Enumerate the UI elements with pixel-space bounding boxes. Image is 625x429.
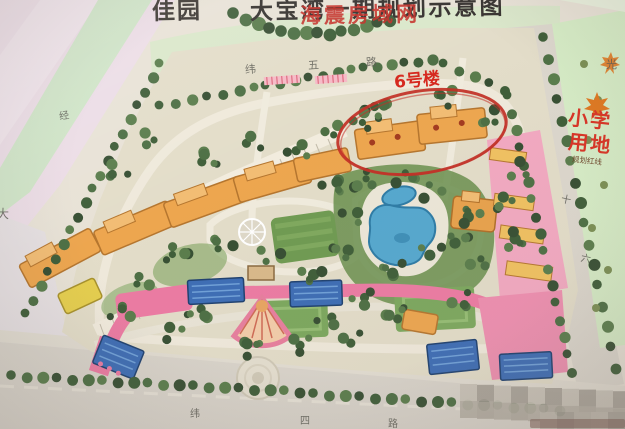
tree-icon	[475, 209, 484, 218]
tree-icon	[575, 197, 587, 209]
tree-icon	[126, 114, 137, 125]
tree-icon	[199, 310, 210, 321]
mosaic-cell	[460, 384, 477, 401]
tree-icon	[437, 243, 446, 252]
tree-icon	[386, 393, 398, 405]
shop-building	[499, 352, 552, 381]
tree-icon	[51, 254, 61, 264]
tree-icon	[508, 226, 519, 237]
shop-building	[187, 278, 244, 305]
tree-icon	[132, 100, 141, 109]
tree-icon	[399, 58, 408, 67]
tree-icon	[28, 296, 38, 306]
tree-icon	[557, 116, 568, 127]
tree-icon	[97, 375, 107, 385]
tree-icon	[37, 372, 49, 384]
site-plan-svg: 佳园 大宝湾一期规划示意图 海震房域网 6号楼 小学 用地 规划红线 纬 五 路…	[0, 0, 625, 429]
tree-icon	[364, 125, 371, 132]
road-label-corner-right: 光	[606, 57, 617, 71]
tree-icon	[523, 177, 534, 188]
mosaic-cell	[579, 390, 596, 407]
tree-icon	[366, 287, 375, 296]
tree-icon	[464, 208, 471, 215]
tree-icon	[234, 383, 244, 393]
tree-icon	[65, 225, 74, 234]
tree-icon	[484, 78, 493, 87]
tree-icon	[171, 99, 181, 109]
tree-icon	[288, 334, 299, 345]
tree-icon	[164, 322, 175, 333]
tree-icon	[162, 335, 171, 344]
tree-icon	[356, 330, 363, 337]
mosaic-cell	[477, 385, 494, 402]
tree-icon	[158, 380, 169, 391]
tree-icon	[295, 388, 306, 399]
tree-icon	[432, 396, 444, 408]
tree-icon	[511, 125, 522, 136]
mosaic-cell	[477, 402, 494, 419]
tree-icon	[611, 364, 622, 375]
tree-icon	[59, 239, 70, 250]
tree-icon	[133, 280, 140, 287]
tree-icon	[144, 279, 155, 290]
tree-icon	[592, 304, 600, 312]
tree-icon	[303, 152, 310, 159]
tree-icon	[580, 60, 588, 68]
label-school-2: 用地	[567, 129, 613, 157]
mosaic-cell	[528, 387, 545, 404]
mosaic-cell	[494, 386, 511, 403]
tree-icon	[600, 181, 608, 189]
tree-icon	[108, 170, 117, 179]
tree-icon	[174, 379, 186, 391]
tree-icon	[67, 375, 78, 386]
tree-icon	[212, 237, 221, 246]
road-label-bottom-3: 路	[388, 417, 398, 429]
photo-frame: 佳园 大宝湾一期规划示意图 海震房域网 6号楼 小学 用地 规划红线 纬 五 路…	[0, 0, 625, 429]
tree-icon	[555, 316, 565, 326]
mosaic-cell	[494, 403, 511, 420]
tree-icon	[249, 385, 260, 396]
tree-icon	[22, 372, 33, 383]
tree-icon	[604, 266, 612, 274]
tree-icon	[355, 219, 362, 226]
tree-icon	[187, 310, 194, 317]
tree-icon	[81, 197, 92, 208]
tree-icon	[320, 127, 329, 136]
road-label-bottom-1: 纬	[190, 407, 200, 420]
tree-icon	[215, 245, 222, 252]
tree-icon	[543, 54, 554, 65]
tree-icon	[330, 131, 337, 138]
tree-icon	[316, 266, 327, 277]
tree-icon	[227, 240, 238, 251]
tree-icon	[531, 213, 541, 223]
tree-icon	[313, 317, 320, 324]
blurred-watermark-strip	[530, 419, 625, 428]
tree-icon	[36, 281, 47, 292]
tree-icon	[370, 394, 381, 405]
tree-icon	[304, 73, 313, 82]
mosaic-cell	[460, 401, 477, 418]
tree-icon	[387, 59, 398, 70]
tree-icon	[88, 184, 97, 193]
tree-icon	[349, 295, 356, 302]
tree-icon	[242, 338, 253, 349]
tree-icon	[516, 239, 523, 246]
tree-icon	[179, 248, 190, 259]
tree-icon	[257, 246, 266, 255]
tree-icon	[163, 256, 170, 263]
tree-icon	[199, 149, 210, 160]
tree-icon	[543, 265, 553, 275]
tree-icon	[83, 374, 95, 386]
tree-icon	[352, 180, 363, 191]
tree-icon	[481, 117, 490, 126]
mosaic-cell	[562, 389, 579, 406]
tree-icon	[570, 178, 581, 189]
tree-icon	[148, 72, 159, 83]
mosaic-cell	[596, 390, 613, 407]
tree-icon	[507, 172, 516, 181]
tree-icon	[107, 313, 114, 320]
tree-icon	[275, 25, 287, 37]
tree-icon	[391, 177, 402, 188]
tree-icon	[338, 333, 349, 344]
tree-icon	[464, 289, 471, 296]
tree-icon	[253, 341, 260, 348]
tree-icon	[535, 228, 546, 239]
tree-icon	[465, 259, 476, 270]
spoke-plaza	[239, 219, 265, 245]
tree-icon	[491, 119, 498, 126]
tree-icon	[218, 90, 228, 100]
tree-icon	[243, 352, 252, 361]
tree-icon	[398, 259, 407, 268]
tree-icon	[503, 91, 512, 100]
tree-icon	[446, 297, 457, 308]
tree-icon	[418, 244, 425, 251]
tree-icon	[343, 245, 354, 256]
tree-icon	[459, 218, 470, 229]
tree-icon	[559, 332, 570, 343]
tree-icon	[155, 101, 164, 110]
tree-icon	[295, 348, 304, 357]
tree-icon	[204, 383, 215, 394]
tree-icon	[324, 391, 335, 402]
road-label-top-1: 纬	[245, 63, 257, 77]
tree-icon	[426, 181, 433, 188]
label-building-6: 6号楼	[393, 68, 440, 93]
tree-icon	[150, 136, 157, 143]
tree-icon	[460, 300, 469, 309]
shop-building	[427, 339, 480, 374]
mosaic-cell	[613, 391, 625, 408]
tree-icon	[367, 180, 376, 189]
tree-icon	[584, 240, 595, 251]
tree-icon	[523, 171, 530, 178]
tree-icon	[592, 280, 602, 290]
tree-icon	[447, 233, 454, 240]
watermark-overlay-text: 海震房域网	[300, 2, 420, 28]
road-label-bottom-2: 四	[300, 416, 310, 427]
tree-icon	[263, 258, 270, 265]
tree-icon	[538, 32, 548, 42]
tree-icon	[384, 310, 395, 321]
tree-icon	[375, 112, 382, 119]
tree-icon	[142, 140, 151, 149]
tree-icon	[202, 92, 211, 101]
tree-icon	[118, 129, 128, 139]
plan-title-prefix: 佳园	[152, 0, 203, 25]
tree-icon	[168, 242, 177, 251]
tree-icon	[324, 29, 337, 42]
tree-icon	[401, 394, 411, 404]
tree-icon	[275, 248, 286, 259]
tree-icon	[547, 280, 558, 291]
tree-icon	[125, 311, 136, 322]
tree-icon	[328, 319, 339, 330]
tree-icon	[306, 276, 313, 283]
mosaic-cell	[511, 403, 528, 420]
tree-icon	[106, 159, 117, 170]
tree-icon	[283, 148, 292, 157]
tree-icon	[507, 109, 517, 119]
tree-icon	[178, 326, 185, 333]
tree-icon	[73, 213, 83, 223]
tree-icon	[495, 202, 504, 211]
mosaic-cell	[545, 388, 562, 405]
tree-icon	[413, 58, 423, 68]
tree-icon	[113, 378, 124, 389]
tree-icon	[567, 368, 577, 378]
tree-icon	[250, 83, 259, 92]
tree-icon	[95, 171, 105, 181]
tree-icon	[461, 233, 470, 242]
tree-icon	[6, 370, 16, 380]
tree-icon	[477, 255, 484, 262]
tree-icon	[399, 306, 406, 313]
tree-icon	[498, 192, 509, 203]
tree-icon	[110, 142, 119, 151]
tree-icon	[297, 267, 306, 276]
tree-icon	[305, 335, 312, 342]
tree-icon	[563, 349, 572, 358]
road-label-left-edge: 大	[0, 207, 9, 221]
tree-icon	[548, 73, 560, 85]
tree-icon	[347, 65, 356, 74]
tree-icon	[416, 397, 427, 408]
tree-icon	[527, 194, 536, 203]
tree-icon	[539, 246, 548, 255]
tree-icon	[470, 71, 481, 82]
tree-icon	[155, 59, 164, 68]
pool-deep-end	[394, 233, 410, 243]
tree-icon	[188, 380, 198, 390]
tree-icon	[418, 193, 429, 204]
tree-icon	[257, 144, 264, 151]
tree-icon	[359, 300, 370, 311]
tree-icon	[437, 187, 446, 196]
tree-icon	[128, 377, 140, 389]
tree-icon	[363, 175, 370, 182]
tree-icon	[504, 243, 513, 252]
tree-icon	[21, 309, 30, 318]
tree-icon	[514, 156, 525, 167]
tree-icon	[52, 373, 62, 383]
tree-icon	[551, 298, 560, 307]
tree-icon	[552, 94, 562, 104]
tree-icon	[354, 391, 364, 401]
tree-icon	[211, 160, 218, 167]
tree-icon	[331, 244, 340, 253]
tree-icon	[235, 85, 246, 96]
tree-icon	[439, 59, 448, 68]
tree-icon	[515, 142, 524, 151]
tree-icon	[245, 131, 256, 142]
tree-icon	[187, 94, 198, 105]
tree-icon	[579, 218, 589, 228]
tree-icon	[424, 250, 435, 261]
tree-icon	[335, 186, 342, 193]
tree-icon	[124, 171, 131, 178]
road-label-top-2: 五	[308, 59, 320, 73]
tree-icon	[265, 384, 277, 396]
tree-icon	[606, 342, 616, 352]
tree-icon	[279, 385, 289, 395]
tree-icon	[454, 67, 464, 77]
tree-icon	[444, 103, 451, 110]
tree-icon	[508, 197, 515, 204]
road-label-top-3: 路	[366, 56, 378, 70]
tree-icon	[481, 261, 490, 270]
tree-icon	[331, 177, 342, 188]
tree-icon	[352, 207, 363, 218]
tree-icon	[602, 321, 614, 333]
mosaic-cell	[511, 386, 528, 403]
tree-icon	[588, 224, 596, 232]
tree-icon	[342, 254, 349, 261]
tree-icon	[427, 54, 438, 65]
tree-icon	[437, 91, 446, 100]
tree-icon	[340, 390, 352, 402]
tree-icon	[338, 208, 347, 217]
tree-icon	[227, 7, 239, 19]
shop-building	[290, 280, 343, 307]
tree-icon	[288, 27, 301, 40]
tree-icon	[447, 397, 457, 407]
tree-icon	[143, 378, 153, 388]
tree-icon	[311, 27, 323, 39]
tree-icon	[297, 139, 308, 150]
garden-pavilion	[248, 266, 274, 280]
tree-icon	[134, 272, 143, 281]
tree-icon	[140, 88, 150, 98]
tree-icon	[382, 264, 389, 271]
tree-icon	[219, 382, 231, 394]
tree-icon	[317, 181, 326, 190]
tree-icon	[169, 251, 176, 258]
tree-icon	[140, 127, 151, 138]
tree-icon	[118, 304, 127, 313]
tree-icon	[43, 267, 52, 276]
tree-icon	[308, 388, 318, 398]
tree-icon	[359, 119, 366, 126]
